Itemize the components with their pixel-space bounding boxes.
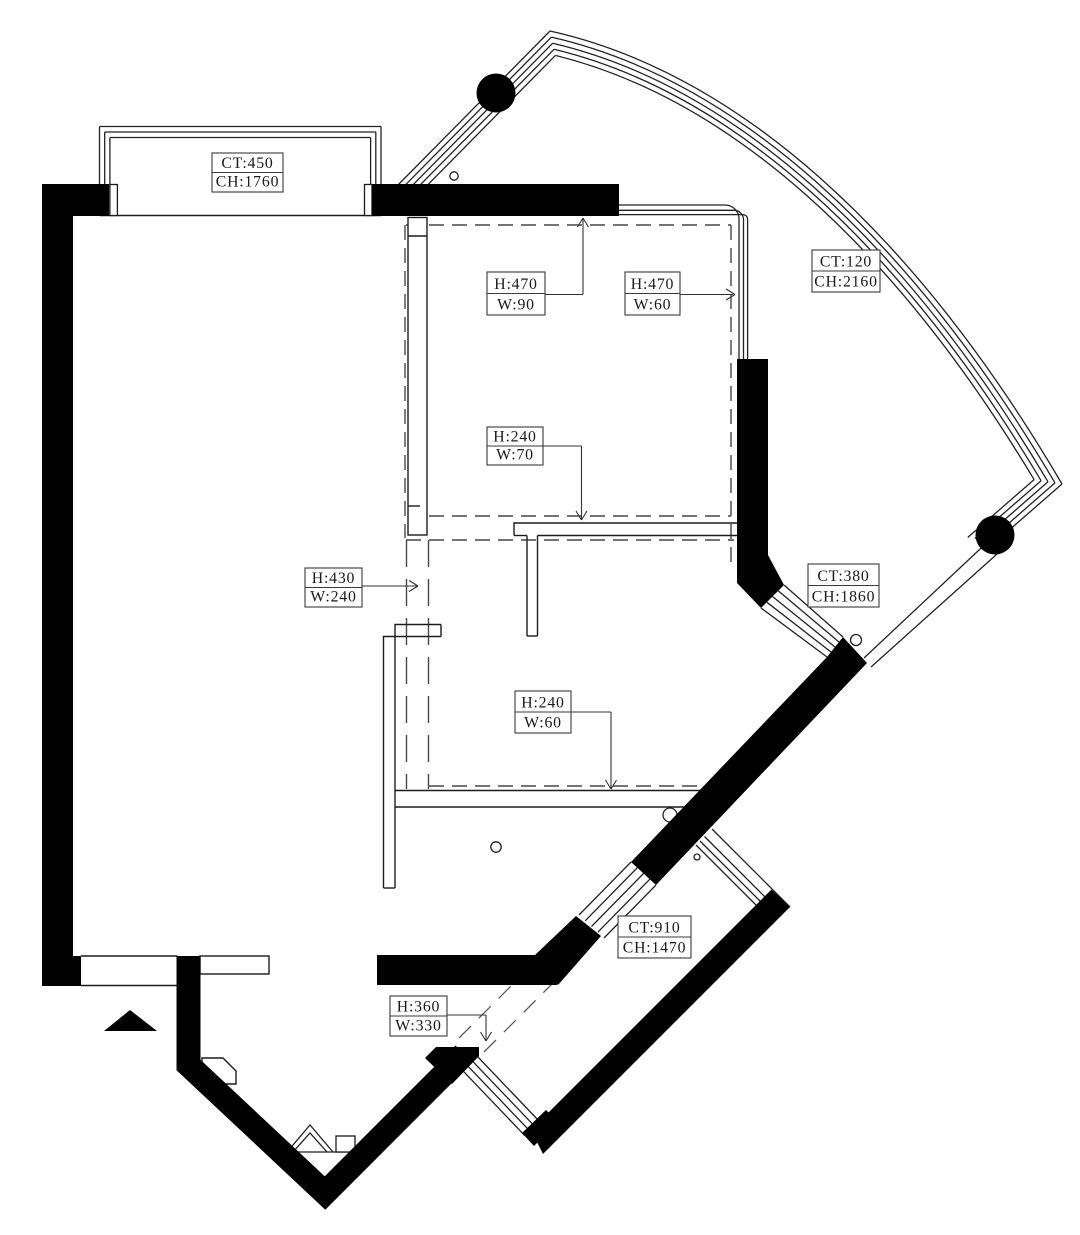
svg-text:W:60: W:60 [524,715,562,732]
svg-text:CT:120: CT:120 [820,254,872,271]
svg-text:H:470: H:470 [631,276,675,293]
svg-text:W:240: W:240 [310,589,356,606]
svg-text:CT:910: CT:910 [628,920,680,937]
svg-text:W:60: W:60 [634,297,672,314]
svg-text:H:240: H:240 [521,695,565,712]
svg-text:H:430: H:430 [312,570,356,587]
svg-text:H:360: H:360 [397,999,441,1016]
svg-text:CH:1760: CH:1760 [216,174,280,191]
svg-text:CT:380: CT:380 [817,568,869,585]
svg-text:CH:1470: CH:1470 [623,940,687,957]
svg-text:W:70: W:70 [496,447,534,464]
svg-text:H:240: H:240 [493,429,537,446]
svg-text:W:330: W:330 [395,1018,441,1035]
svg-text:H:470: H:470 [494,276,538,293]
svg-text:CT:450: CT:450 [221,155,273,172]
svg-text:W:90: W:90 [497,297,535,314]
svg-text:CH:2160: CH:2160 [814,274,878,291]
svg-text:CH:1860: CH:1860 [812,589,876,606]
